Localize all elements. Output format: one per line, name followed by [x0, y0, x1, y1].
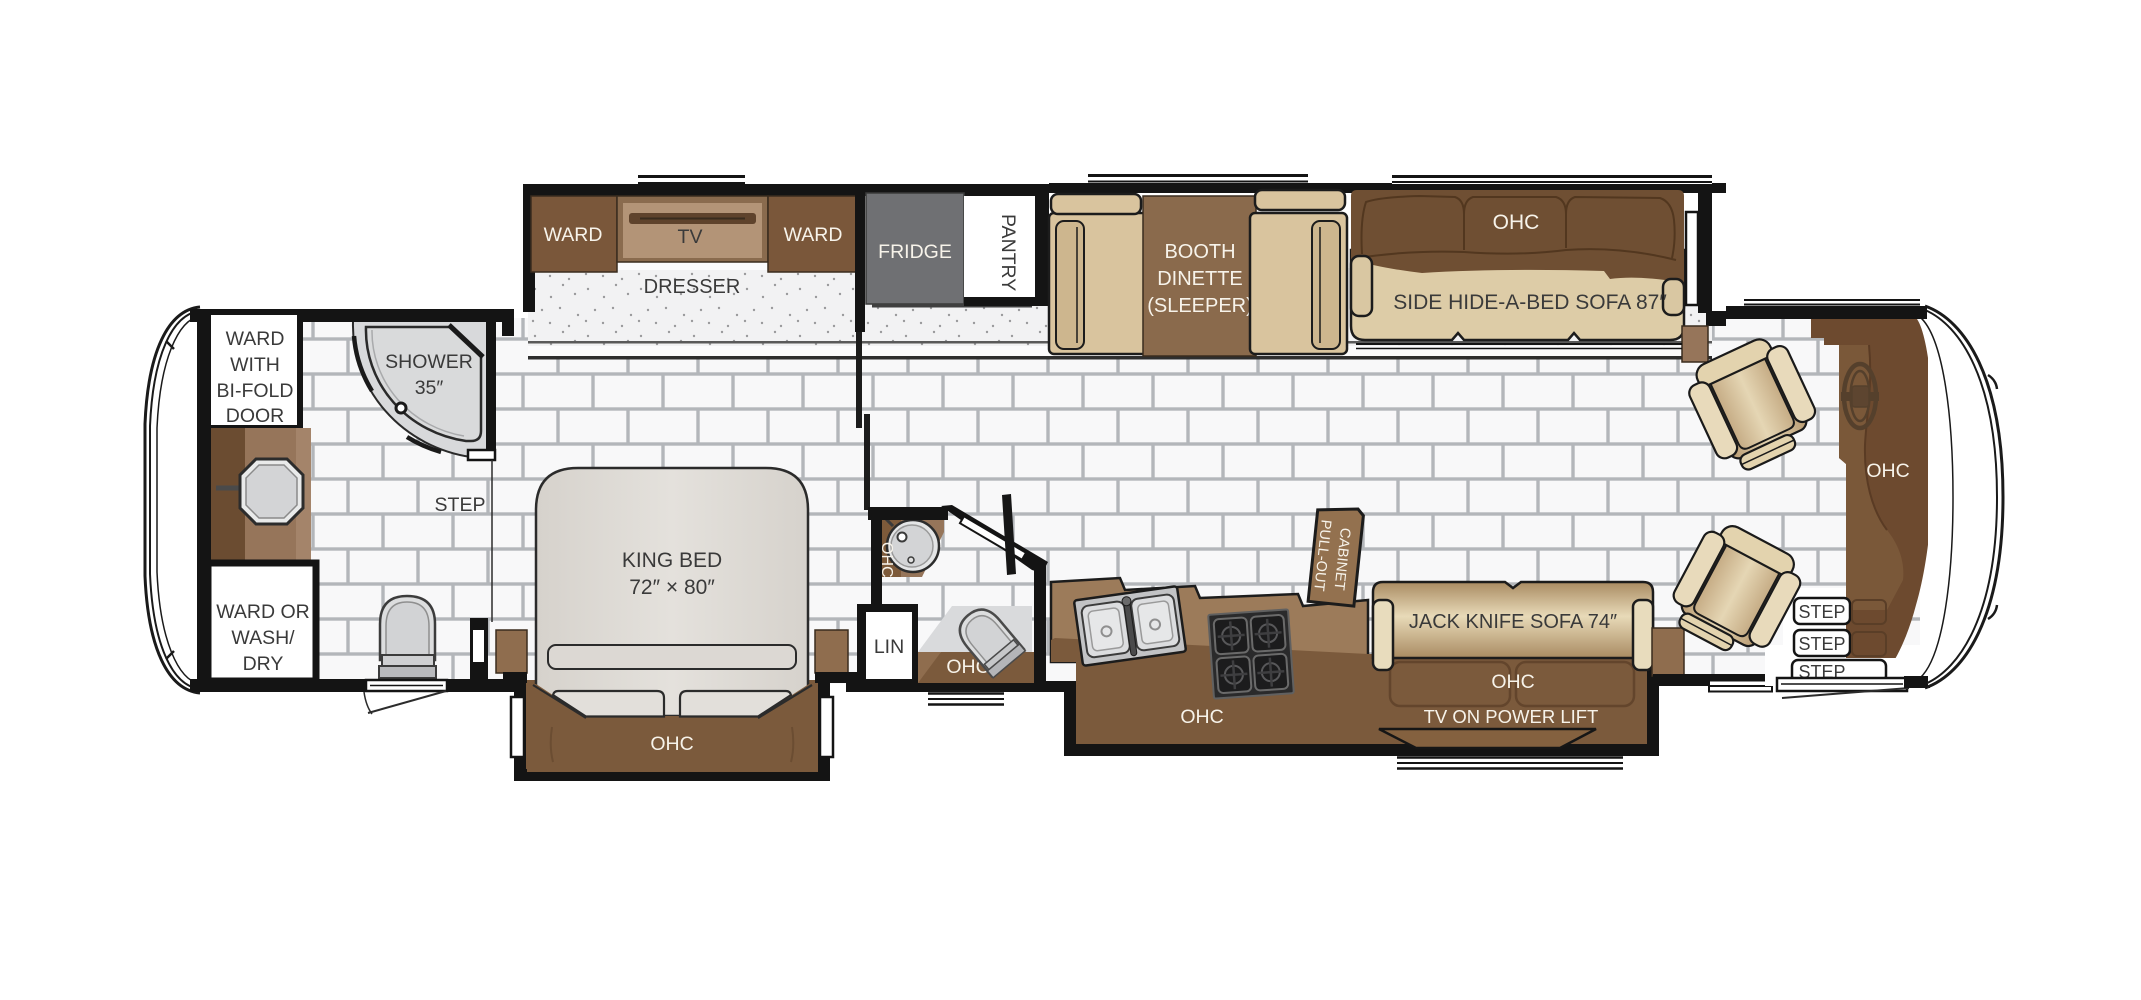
svg-text:TV: TV: [678, 226, 703, 248]
svg-text:WITH: WITH: [230, 354, 280, 376]
svg-text:OHC: OHC: [1491, 671, 1534, 693]
svg-text:STEP: STEP: [435, 494, 486, 516]
svg-text:WARD OR: WARD OR: [216, 601, 310, 623]
svg-text:JACK KNIFE SOFA 74″: JACK KNIFE SOFA 74″: [1409, 611, 1617, 633]
svg-text:KING BED: KING BED: [622, 549, 722, 572]
svg-text:72″ × 80″: 72″ × 80″: [629, 576, 715, 599]
svg-text:OHC: OHC: [1866, 460, 1909, 482]
svg-text:WARD: WARD: [544, 224, 603, 246]
svg-text:OHC: OHC: [1493, 211, 1540, 234]
svg-text:35″: 35″: [415, 377, 444, 399]
svg-text:OHC: OHC: [650, 733, 693, 755]
svg-text:DRY: DRY: [243, 653, 284, 675]
svg-text:STEP: STEP: [1798, 634, 1845, 654]
svg-text:OHC: OHC: [1180, 706, 1223, 728]
svg-text:STEP: STEP: [1798, 602, 1845, 622]
svg-text:WARD: WARD: [784, 224, 843, 246]
svg-text:PANTRY: PANTRY: [997, 214, 1019, 291]
svg-text:OHC: OHC: [878, 542, 895, 578]
svg-text:DINETTE: DINETTE: [1157, 268, 1243, 290]
svg-text:(SLEEPER): (SLEEPER): [1147, 295, 1253, 317]
svg-text:DRESSER: DRESSER: [644, 276, 741, 298]
svg-text:FRIDGE: FRIDGE: [878, 241, 952, 263]
svg-text:TV ON POWER LIFT: TV ON POWER LIFT: [1424, 706, 1599, 727]
svg-text:WARD: WARD: [226, 328, 285, 350]
svg-text:BI-FOLD: BI-FOLD: [217, 380, 294, 402]
svg-text:LIN: LIN: [874, 636, 904, 658]
svg-text:DOOR: DOOR: [226, 405, 285, 427]
svg-text:SIDE HIDE-A-BED SOFA 87″: SIDE HIDE-A-BED SOFA 87″: [1393, 291, 1667, 314]
svg-text:WASH/: WASH/: [231, 627, 295, 649]
svg-text:BOOTH: BOOTH: [1164, 241, 1235, 263]
svg-text:SHOWER: SHOWER: [385, 351, 473, 373]
